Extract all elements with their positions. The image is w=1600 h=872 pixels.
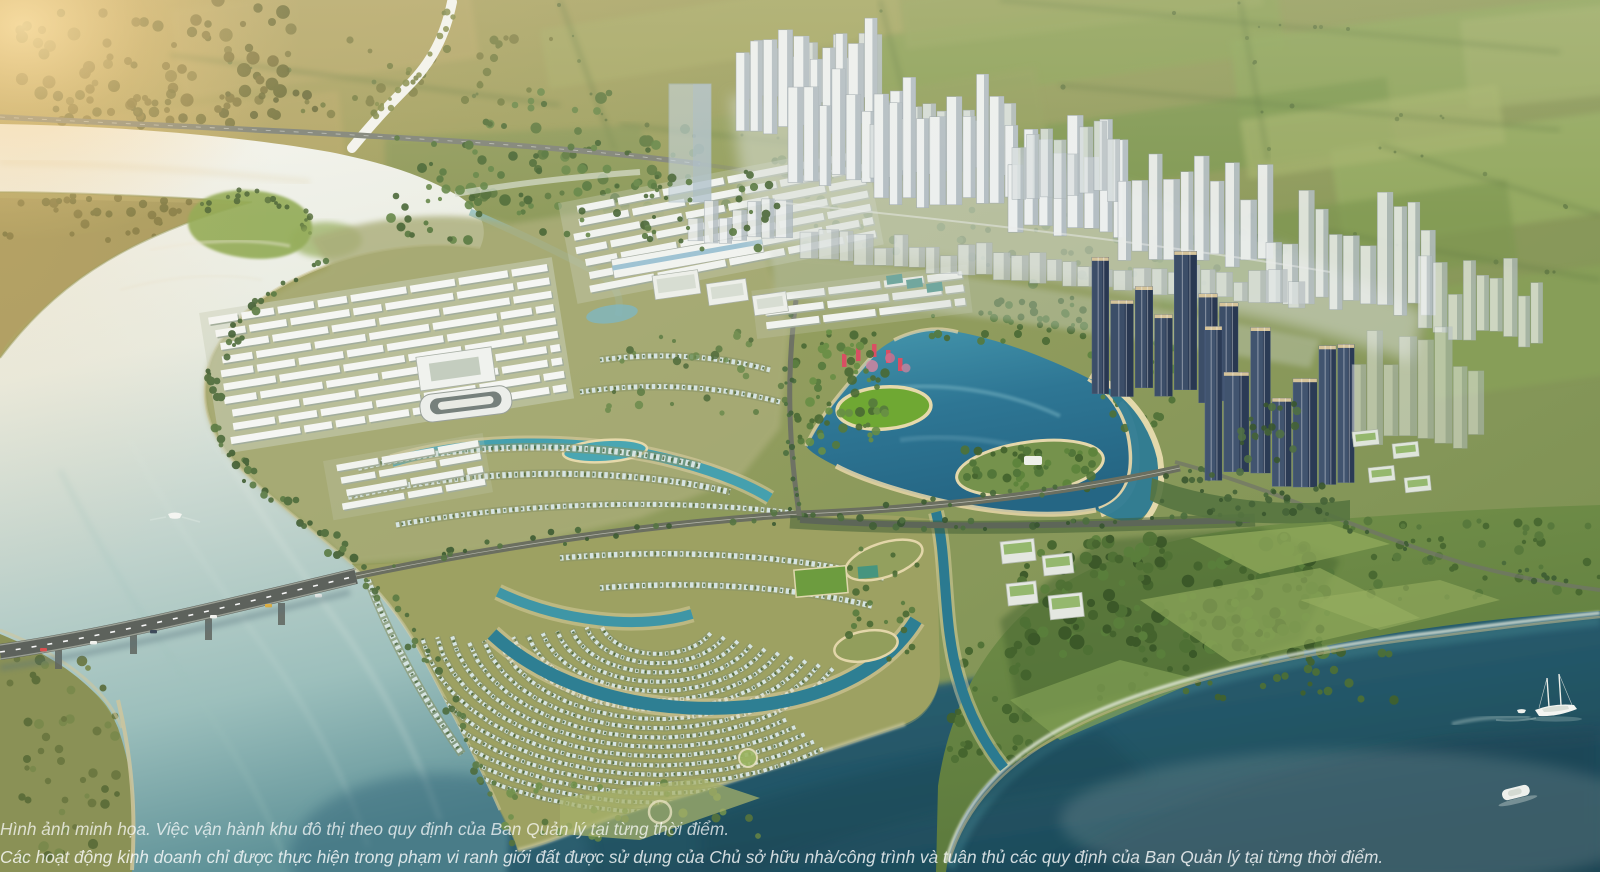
svg-text:Hình ảnh minh họa. Việc vận hà: Hình ảnh minh họa. Việc vận hành khu đô …	[0, 819, 729, 839]
svg-text:Các hoạt động kinh doanh chỉ đ: Các hoạt động kinh doanh chỉ được thực h…	[0, 847, 1383, 867]
